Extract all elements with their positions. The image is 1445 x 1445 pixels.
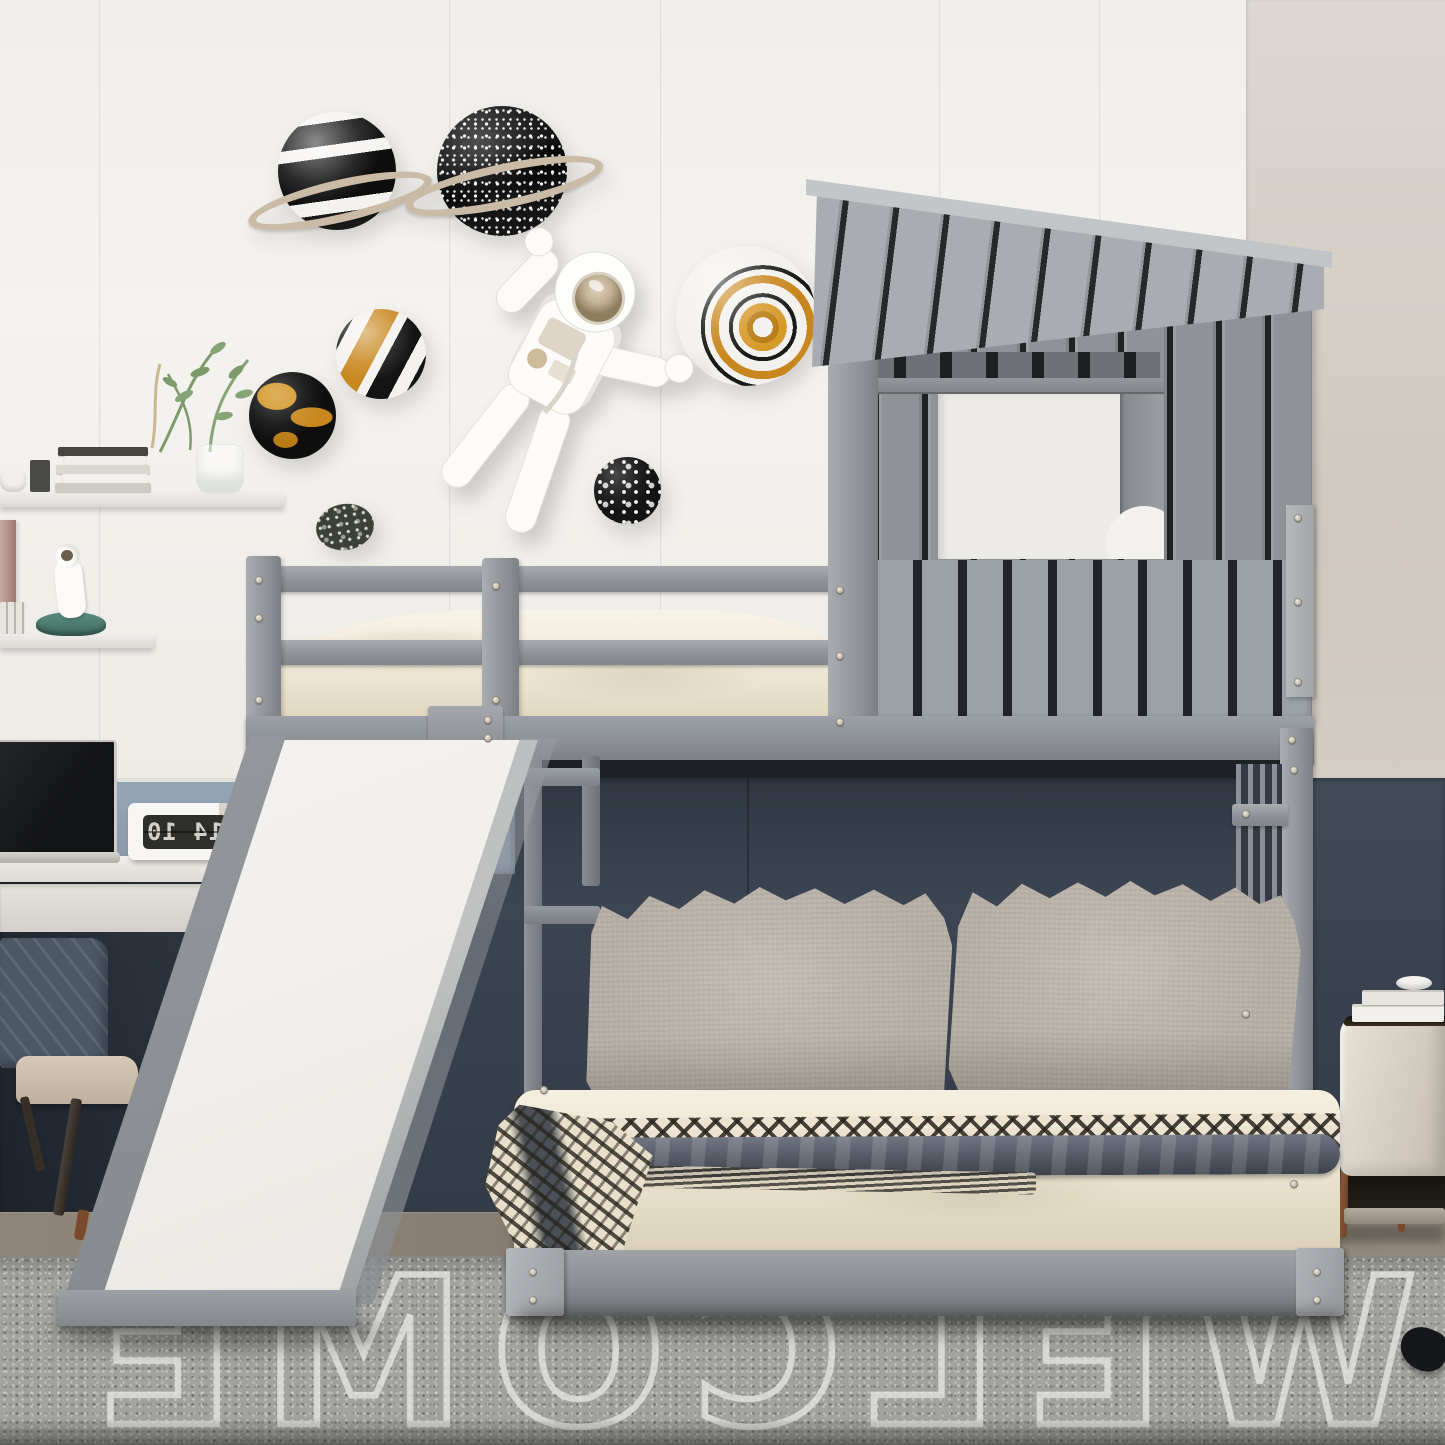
playhouse-header-gaps <box>860 352 1160 378</box>
loft-beam-shadow-gap <box>524 760 1282 778</box>
shelf-book <box>55 483 151 492</box>
lower-bed-frame-cap-right <box>1296 1248 1344 1316</box>
under-bunk-shadow <box>510 778 1310 908</box>
screw <box>529 1296 537 1304</box>
screw <box>484 734 492 742</box>
screw <box>484 716 492 724</box>
carpet-edge-shadow <box>0 1418 1445 1445</box>
loft-platform-beam <box>246 716 1314 764</box>
screw <box>492 696 500 704</box>
chair-back <box>0 938 108 1068</box>
screw <box>1313 1268 1321 1276</box>
screw <box>1288 736 1296 744</box>
lower-bed-frame <box>506 1250 1344 1316</box>
shelf-book <box>58 447 148 456</box>
shelf-book <box>64 456 146 465</box>
nightstand-book <box>1362 990 1444 1005</box>
pillow-in-window <box>1106 506 1164 559</box>
screw <box>1294 514 1302 522</box>
pillow-right <box>948 871 1302 1109</box>
screw <box>255 614 263 622</box>
nightstand-book <box>1352 1004 1444 1022</box>
nightstand-dish <box>1396 976 1432 990</box>
ladder-rung <box>524 768 600 786</box>
playhouse-window <box>938 388 1164 559</box>
screw <box>1242 1010 1250 1018</box>
top-bunk-mattress <box>280 610 838 726</box>
pillow-left <box>583 877 955 1113</box>
wall-panel-groove <box>99 0 102 778</box>
shelf-dark-book <box>30 460 50 492</box>
flip-clock: 14 10 <box>128 803 242 860</box>
screw <box>1313 1296 1321 1304</box>
wall-decor-dotted-planet <box>437 106 567 236</box>
desk-drawer <box>0 884 252 932</box>
shelf-book <box>62 474 148 483</box>
laptop-base <box>0 852 120 863</box>
screw <box>492 582 500 590</box>
screw <box>1294 598 1302 606</box>
top-bunk-guard-rail-lower <box>248 640 850 665</box>
laptop-screen <box>0 740 117 856</box>
astronaut-wall-figure <box>415 235 695 535</box>
wall-decor-striped-planet <box>278 112 396 230</box>
screw <box>540 1086 548 1094</box>
screw <box>836 718 844 726</box>
floating-shelf-lower <box>0 634 154 648</box>
nightstand-base-board <box>1344 1208 1445 1224</box>
screw <box>1290 766 1298 774</box>
bedroom-scene: WELCOME <box>0 0 1445 1445</box>
plant-vase <box>196 444 244 494</box>
slide-foot <box>58 1290 356 1326</box>
toy-astronaut-visor <box>61 550 73 561</box>
flip-clock-split-line <box>143 831 227 833</box>
screw <box>255 696 263 704</box>
floating-shelf-upper <box>0 492 284 507</box>
chair-seat <box>16 1056 138 1104</box>
shelf-plant <box>140 334 270 454</box>
nightstand-body <box>1340 1016 1445 1176</box>
flip-clock-display: 14 10 <box>143 815 227 849</box>
ladder-rung <box>524 906 600 924</box>
shelf-bowl <box>0 472 26 492</box>
top-bunk-guard-rail-upper <box>248 566 850 592</box>
screw <box>1290 1180 1298 1188</box>
wall-decor-swirl-planet <box>676 246 816 386</box>
screw <box>1294 678 1302 686</box>
screw <box>529 1268 537 1276</box>
lower-bed-frame-cap-left <box>506 1248 564 1316</box>
screw <box>836 586 844 594</box>
screw <box>1242 810 1250 818</box>
lower-bed-floor-shadow <box>520 1312 1340 1334</box>
shelf-mini-books <box>0 602 26 634</box>
shelf-book <box>56 465 150 474</box>
screw <box>255 576 263 584</box>
wall-decor-gold-striped-planet <box>336 309 426 399</box>
planet-gloss <box>676 246 816 386</box>
screw <box>836 652 844 660</box>
right-ladder-rung <box>1232 804 1288 826</box>
playhouse-corner-plank-left <box>828 265 878 728</box>
slide-mount-plate <box>428 706 503 750</box>
playhouse-header-beam <box>856 378 1164 394</box>
ladder-rail <box>524 756 542 1124</box>
nightstand-floor-shadow <box>1336 1224 1445 1242</box>
playhouse-fence-slats <box>832 560 1310 726</box>
planet-gloss <box>336 309 426 399</box>
